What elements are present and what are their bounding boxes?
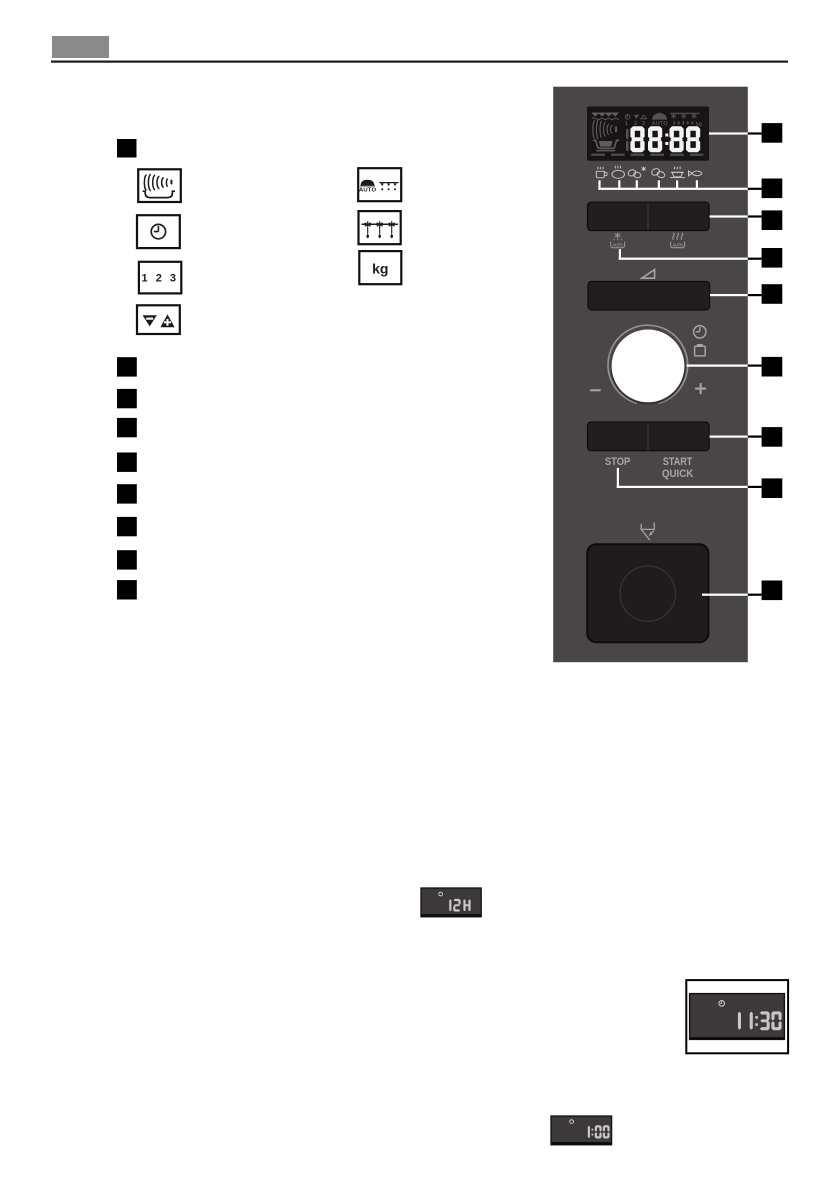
svg-text:QUICK: QUICK xyxy=(662,468,694,480)
svg-text:AUTO: AUTO xyxy=(359,188,377,194)
svg-text:AUTO: AUTO xyxy=(652,121,668,127)
svg-text:2: 2 xyxy=(634,121,637,127)
svg-text:AUTO: AUTO xyxy=(672,243,683,249)
svg-text:kg: kg xyxy=(372,261,388,277)
svg-text:STOP: STOP xyxy=(605,456,631,468)
svg-text:START: START xyxy=(663,456,693,468)
svg-text:AUTO: AUTO xyxy=(612,243,623,249)
svg-text:1 2 3: 1 2 3 xyxy=(142,273,179,285)
